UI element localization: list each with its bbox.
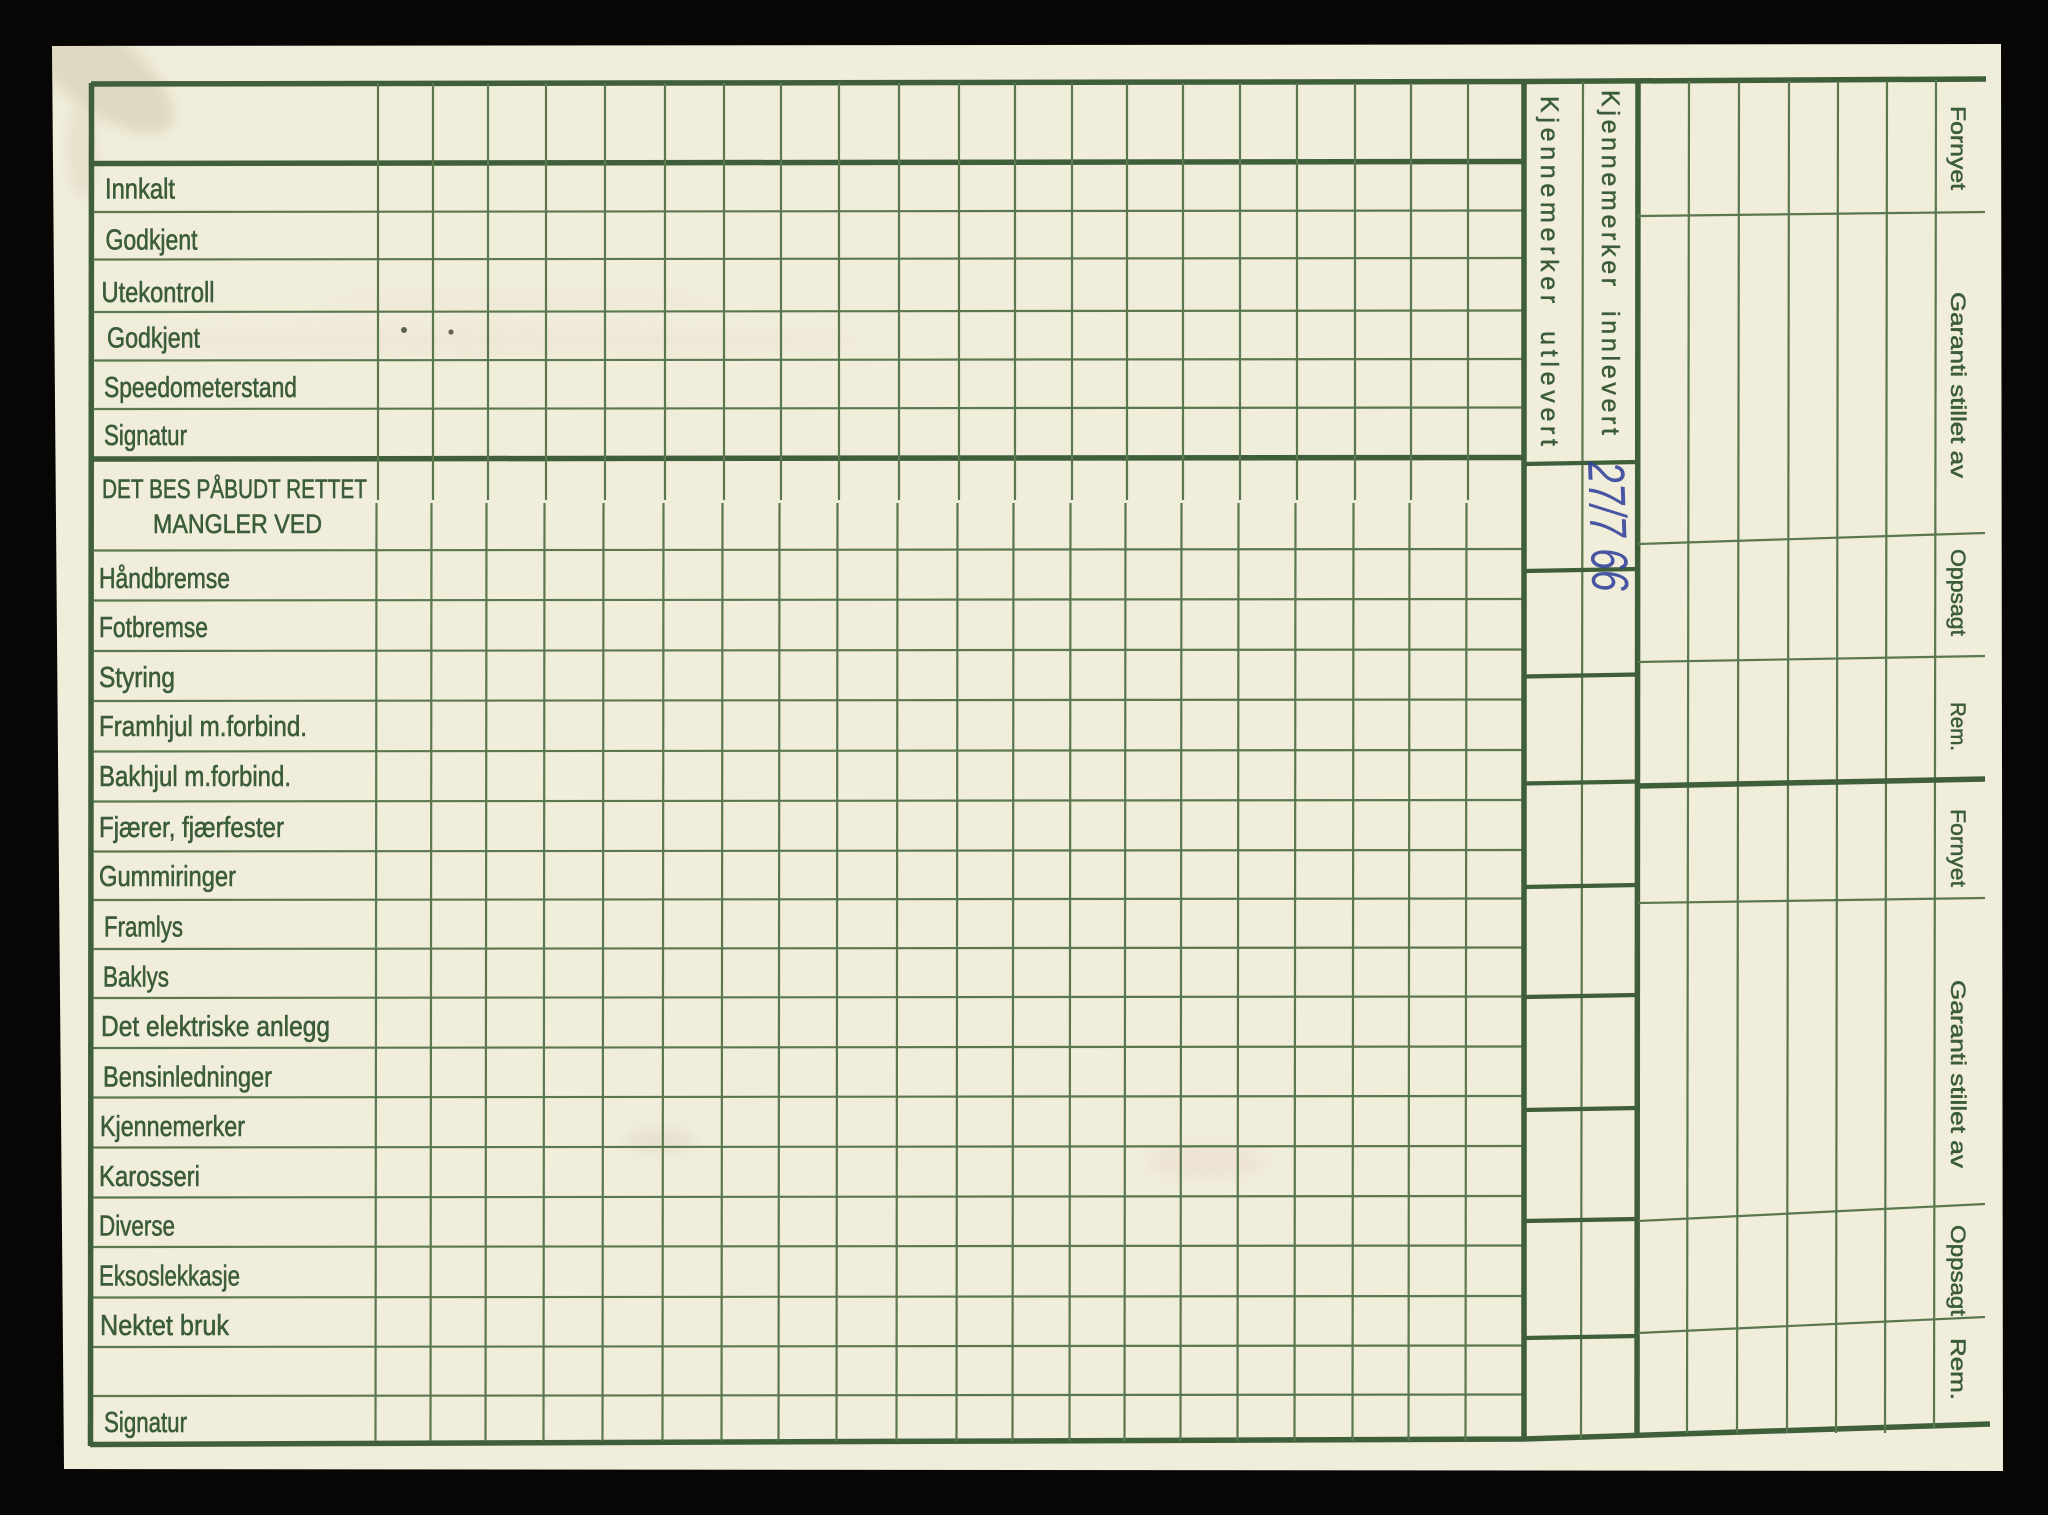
svg-text:Utekontroll: Utekontroll — [102, 277, 215, 309]
svg-text:Det elektriske anlegg: Det elektriske anlegg — [101, 1011, 330, 1043]
svg-text:Innkalt: Innkalt — [105, 174, 175, 206]
svg-text:Oppsagt: Oppsagt — [1946, 1225, 1969, 1316]
svg-text:Fjærer, fjærfester: Fjærer, fjærfester — [99, 812, 284, 844]
svg-text:27/7 66: 27/7 66 — [1576, 460, 1639, 593]
svg-text:Fotbremse: Fotbremse — [99, 612, 208, 644]
svg-text:Rem.: Rem. — [1946, 702, 1969, 751]
svg-text:Fornyet: Fornyet — [1946, 809, 1969, 887]
svg-text:Styring: Styring — [99, 662, 175, 694]
svg-text:Fornyet: Fornyet — [1946, 106, 1969, 190]
svg-text:DET BES PÅBUDT RETTET: DET BES PÅBUDT RETTET — [102, 473, 367, 504]
svg-text:Diverse: Diverse — [99, 1211, 175, 1243]
svg-text:Nektet bruk: Nektet bruk — [100, 1310, 229, 1342]
svg-text:Baklys: Baklys — [103, 962, 169, 994]
svg-text:Karosseri: Karosseri — [99, 1161, 200, 1193]
svg-text:Garanti stillet av: Garanti stillet av — [1946, 980, 1969, 1169]
svg-text:Godkjent: Godkjent — [106, 225, 198, 257]
svg-text:Kjennemerker: Kjennemerker — [100, 1111, 245, 1143]
svg-text:Signatur: Signatur — [104, 420, 187, 452]
svg-text:Godkjent: Godkjent — [107, 323, 200, 355]
svg-text:Håndbremse: Håndbremse — [99, 563, 230, 595]
svg-text:Signatur: Signatur — [104, 1407, 187, 1439]
svg-text:Framhjul m.forbind.: Framhjul m.forbind. — [99, 711, 307, 743]
svg-text:Gummiringer: Gummiringer — [99, 861, 236, 893]
svg-text:Kjennemerker innlevert: Kjennemerker innlevert — [1596, 90, 1624, 435]
svg-text:MANGLER VED: MANGLER VED — [153, 509, 322, 539]
svg-text:Eksoslekkasje: Eksoslekkasje — [99, 1261, 240, 1293]
svg-text:Framlys: Framlys — [104, 912, 183, 944]
svg-text:Kjennemerker utlevert: Kjennemerker utlevert — [1535, 96, 1563, 446]
svg-text:Oppsagt: Oppsagt — [1946, 549, 1969, 636]
svg-text:Garanti stillet av: Garanti stillet av — [1946, 292, 1969, 479]
svg-text:Speedometerstand: Speedometerstand — [104, 372, 297, 404]
svg-text:Bakhjul m.forbind.: Bakhjul m.forbind. — [99, 761, 291, 793]
svg-text:Bensinledninger: Bensinledninger — [103, 1062, 272, 1094]
svg-text:Rem.: Rem. — [1946, 1338, 1969, 1400]
